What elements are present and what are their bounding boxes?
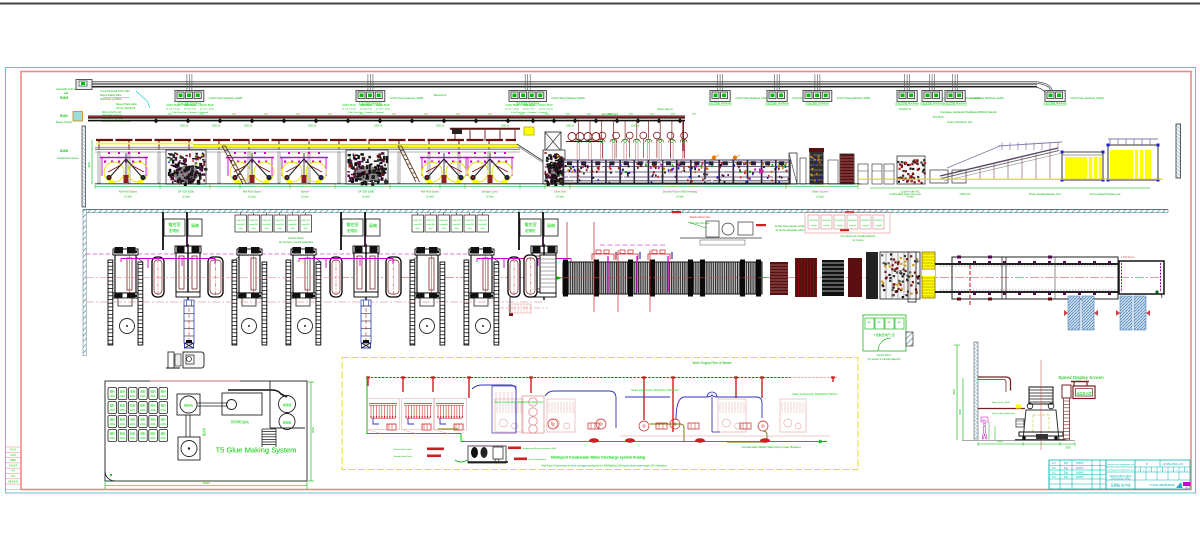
svg-text:中央控制柜 Distributor: 中央控制柜 Distributor: [1043, 101, 1067, 105]
svg-text:胶料: 胶料: [120, 418, 126, 422]
svg-text:200L: 200L: [140, 436, 146, 440]
svg-text:(2 set): (2 set): [816, 195, 823, 199]
svg-text:Servo PaperStopper part: Servo PaperStopper part: [1090, 192, 1121, 196]
svg-text:2021: 2021: [360, 114, 366, 116]
svg-text:中央控制柜 Distributor: 中央控制柜 Distributor: [943, 101, 967, 105]
svg-text:AB: AB: [878, 321, 881, 324]
svg-text:8 8: 8 8: [11, 474, 15, 478]
svg-text:45 mm 100x2700: 45 mm 100x2700: [116, 107, 136, 110]
svg-text:2021: 2021: [520, 114, 526, 116]
svg-text:胶料: 胶料: [161, 404, 167, 408]
svg-text:SF-320 1800: SF-320 1800: [178, 190, 195, 194]
svg-text:Glue Unit: Glue Unit: [554, 190, 566, 194]
svg-text:(2 sets x 4set): (2 sets x 4set): [505, 108, 519, 111]
svg-text:600x700: 600x700: [275, 220, 284, 222]
svg-text:Splicer: Splicer: [301, 190, 310, 194]
svg-text:数量: 数量: [1064, 461, 1068, 465]
svg-text:600x700: 600x700: [452, 220, 461, 222]
svg-text:1500: 1500: [1065, 447, 1071, 450]
svg-text:2021: 2021: [608, 114, 614, 116]
svg-text:7YWJF16B9BU8918: 7YWJF16B9BU8918: [1149, 483, 1175, 487]
svg-text:200L: 200L: [160, 408, 166, 412]
svg-text:胶料: 胶料: [110, 432, 116, 436]
svg-text:Control Tower Distributor cab4: Control Tower Distributor cab400: [551, 97, 585, 100]
svg-text:Heavy Distributor size: Heavy Distributor size: [947, 120, 973, 124]
svg-text:電控室: 電控室: [168, 221, 181, 228]
svg-text:Steam Consumption 9000kg/Hour: Steam Consumption 9000kg/Hour 500m/color: [495, 401, 544, 404]
svg-text:8 8 8 8: 8 8 8 8: [9, 463, 17, 467]
svg-text:Wire to the 5 to rail: Wire to the 5 to rail: [102, 111, 122, 114]
svg-text:1200 t/a: 1200 t/a: [501, 125, 510, 128]
svg-text:126.5kW: 126.5kW: [523, 103, 535, 107]
svg-text:胶料: 胶料: [161, 418, 167, 422]
svg-text:Pcs Section At Condition Elect: Pcs Section At Condition Electric: [841, 235, 876, 238]
svg-text:1200 t/a: 1200 t/a: [212, 125, 221, 128]
svg-text:main400: main400: [262, 224, 271, 226]
svg-text:中央控制柜 Distributor: 中央控制柜 Distributor: [765, 101, 789, 105]
svg-text:Mezz Level +4500: Mezz Level +4500: [992, 402, 1011, 404]
svg-text:200L: 200L: [120, 394, 126, 398]
svg-text:600x700: 600x700: [413, 220, 422, 222]
svg-text:Control Tower Distributor cab4: Control Tower Distributor cab400: [970, 97, 1004, 100]
svg-text:(2 set): (2 set): [556, 195, 563, 199]
svg-text:胶料: 胶料: [130, 404, 136, 408]
svg-text:600x700: 600x700: [426, 220, 435, 222]
svg-text:main400: main400: [439, 224, 448, 226]
svg-text:AB: AB: [888, 321, 891, 324]
svg-text:distr: distr: [481, 227, 485, 230]
svg-text:200L: 200L: [109, 422, 115, 426]
svg-text:胶料: 胶料: [161, 432, 167, 436]
svg-text:distr: distr: [252, 227, 256, 230]
svg-text:WJ250-2500-2-15: WJ250-2500-2-15: [1163, 463, 1184, 466]
svg-text:Control Tower Distributor cab4: Control Tower Distributor cab400: [209, 97, 243, 100]
svg-text:Control Tower Distributor cab4: Control Tower Distributor cab400: [735, 97, 769, 100]
svg-text:Mill Roll Stand: Mill Roll Stand: [421, 190, 439, 194]
svg-text:200L: 200L: [150, 408, 156, 412]
svg-text:2016.5kW: 2016.5kW: [539, 103, 553, 107]
svg-text:Control Tower Distributor cab4: Control Tower Distributor cab400: [390, 97, 424, 100]
svg-text:600x700: 600x700: [465, 220, 474, 222]
svg-text:(by Section to Counting Electr: (by Section to Counting Electric): [868, 358, 901, 361]
svg-text:标记: 标记: [1052, 466, 1056, 470]
svg-text:200L: 200L: [160, 394, 166, 398]
svg-text:成胶罐: 成胶罐: [283, 421, 292, 425]
svg-text:main400: main400: [478, 224, 487, 226]
svg-text:600x700: 600x700: [236, 220, 245, 222]
svg-text:2021: 2021: [328, 114, 334, 116]
svg-text:Mill Roll Stand: Mill Roll Stand: [243, 190, 261, 194]
svg-text:胶料: 胶料: [161, 390, 167, 394]
svg-text:胶料: 胶料: [140, 404, 146, 408]
svg-text:600x700: 600x700: [439, 220, 448, 222]
svg-text:Distributor pcs500A: Distributor pcs500A: [100, 98, 122, 101]
svg-text:200L: 200L: [120, 408, 126, 412]
svg-text:2021: 2021: [671, 114, 677, 116]
svg-text:Complete Hydraulic Shaftless: Complete Hydraulic Shaftless Mill Roll S…: [940, 110, 997, 114]
svg-text:200L: 200L: [140, 422, 146, 426]
svg-text:AB: AB: [898, 321, 901, 324]
svg-text:胶料: 胶料: [140, 418, 146, 422]
svg-text:(2 set): (2 set): [182, 195, 189, 199]
svg-text:電控室: 電控室: [524, 221, 537, 228]
svg-text:distr: distr: [304, 227, 308, 230]
svg-text:胶料: 胶料: [120, 390, 126, 394]
svg-text:(2 set): (2 set): [124, 195, 131, 199]
svg-text:Control Tower Distributor cab4: Control Tower Distributor cab400: [1070, 97, 1104, 100]
svg-text:5163: 5163: [60, 96, 68, 100]
svg-text:Corrugated cardboard corp: Corrugated cardboard corp: [1107, 469, 1134, 472]
svg-text:1200 t/a: 1200 t/a: [308, 125, 317, 128]
svg-text:風機: 風機: [191, 222, 199, 228]
svg-text:main400: main400: [452, 224, 461, 226]
svg-text:Steam Inflow Valve: Steam Inflow Valve: [393, 448, 412, 451]
svg-text:胶料: 胶料: [130, 418, 136, 422]
svg-text:(2 set): (2 set): [426, 195, 433, 199]
svg-text:distr: distr: [442, 227, 446, 230]
svg-text:(by Section to Counting Electr: (by Section to Counting Electric): [279, 241, 313, 244]
svg-text:200L: 200L: [130, 394, 136, 398]
svg-text:200L: 200L: [140, 394, 146, 398]
svg-text:distr: distr: [416, 227, 420, 230]
svg-text:4 8m 50m Stm—Chamber 2-Optiona: 4 8m 50m Stm—Chamber 2-Optional: [511, 111, 548, 114]
svg-text:600x700: 600x700: [478, 220, 487, 222]
svg-text:200L: 200L: [130, 436, 136, 440]
svg-text:2021: 2021: [587, 114, 593, 116]
svg-text:中央控制柜 Distributor: 中央控制柜 Distributor: [920, 101, 944, 105]
svg-text:(2 sets x 4set): (2 sets x 4set): [539, 108, 553, 111]
svg-text:main400: main400: [413, 224, 422, 226]
svg-text:200L: 200L: [109, 408, 115, 412]
svg-text:weight: weight: [862, 224, 869, 227]
svg-text:600x700: 600x700: [301, 220, 310, 222]
svg-text:(2sets) 2set: (2sets) 2set: [184, 108, 196, 111]
svg-text:Condensate Water Main Pipe Low: Condensate Water Main Pipe Lower Bracket: [741, 445, 800, 449]
svg-text:Speed Track cable: Speed Track cable: [116, 103, 137, 106]
svg-text:2021: 2021: [200, 114, 206, 116]
svg-text:620x350: 620x350: [861, 220, 870, 222]
svg-text:Assembly Unit to: Assembly Unit to: [56, 87, 76, 91]
svg-text:中央控制柜 Distributor: 中央控制柜 Distributor: [895, 101, 919, 105]
svg-text:1200 t/a: 1200 t/a: [180, 125, 189, 128]
svg-text:Smooth Inlet Valve: Smooth Inlet Valve: [394, 455, 413, 458]
svg-text:(2sets) 2set: (2sets) 2set: [523, 108, 535, 111]
svg-text:1200 t/a: 1200 t/a: [374, 125, 383, 128]
svg-text:MAG: MAG: [982, 419, 987, 422]
svg-text:Condensate Mixed overflow to W: Condensate Mixed overflow to Wall: [522, 447, 557, 450]
svg-text:200L: 200L: [150, 436, 156, 440]
svg-text:4 8 8: 4 8 8: [10, 453, 16, 457]
svg-text:2021: 2021: [629, 114, 635, 116]
svg-text:5000: 5000: [997, 441, 1003, 444]
svg-text:200L: 200L: [120, 422, 126, 426]
svg-text:修改单号: 修改单号: [1076, 461, 1084, 465]
svg-text:数量: 数量: [1064, 466, 1068, 470]
svg-text:620x350: 620x350: [822, 220, 831, 222]
svg-text:2016.5kW: 2016.5kW: [200, 103, 214, 107]
svg-text:数量: 数量: [1064, 471, 1068, 475]
svg-text:修改单号: 修改单号: [1076, 471, 1084, 475]
svg-text:速度显示屏: 速度显示屏: [1076, 391, 1091, 396]
svg-text:Work Supply Pipe of Steam: Work Supply Pipe of Steam: [693, 361, 732, 365]
svg-text:胶料: 胶料: [140, 390, 146, 394]
svg-text:2021: 2021: [168, 114, 174, 116]
svg-text:distr: distr: [429, 227, 433, 230]
svg-text:瓦楞纸 生产线: 瓦楞纸 生产线: [1110, 483, 1131, 488]
svg-text:Incline Belt Conv Con-ed: Incline Belt Conv Con-ed: [890, 192, 921, 196]
svg-text:4 8: 4 8: [11, 469, 15, 473]
svg-text:标记: 标记: [1052, 475, 1056, 479]
svg-text:電控室: 電控室: [346, 221, 359, 228]
svg-text:Speed Safety Plate: Speed Safety Plate: [100, 94, 122, 97]
svg-text:600x700: 600x700: [249, 220, 258, 222]
svg-text:Equipment Layout: Equipment Layout: [58, 156, 79, 160]
svg-text:中央控制柜 Distributor: 中央控制柜 Distributor: [806, 101, 830, 105]
svg-text:2250x2500x178/5L: 2250x2500x178/5L: [1110, 478, 1131, 481]
svg-text:1200 t/a: 1200 t/a: [244, 125, 253, 128]
svg-text:数量: 数量: [1064, 475, 1068, 479]
svg-text:200L: 200L: [109, 394, 115, 398]
svg-text:distr: distr: [278, 227, 282, 230]
svg-text:胶料: 胶料: [151, 418, 157, 422]
svg-text:Mill Roll Stand: Mill Roll Stand: [119, 190, 137, 194]
svg-text:weight: weight: [849, 224, 856, 227]
svg-text:600x700: 600x700: [288, 220, 297, 222]
svg-text:胶料: 胶料: [110, 418, 116, 422]
svg-text:main400: main400: [301, 224, 310, 226]
svg-text:(2 sets x 4set): (2 sets x 4set): [342, 108, 356, 111]
svg-text:标记: 标记: [1052, 461, 1056, 465]
svg-text:Recycle Unit Glue: Recycle Unit Glue: [690, 222, 710, 225]
svg-text:Steam Consumption 4000T/Hour 7: Steam Consumption 4000T/Hour 700m/color: [631, 389, 679, 392]
svg-text:修改单号: 修改单号: [1076, 475, 1084, 479]
svg-text:(2 sets x 4set): (2 sets x 4set): [376, 108, 390, 111]
svg-text:Down DoubleStacker size: Down DoubleStacker size: [1029, 192, 1061, 196]
svg-text:≈400 pcs: ≈400 pcs: [959, 192, 971, 196]
svg-text:main400: main400: [426, 224, 435, 226]
svg-text:5161: 5161: [60, 114, 68, 118]
svg-text:Double Hose Cylinder to Pipe: Double Hose Cylinder to Pipe: [775, 225, 806, 228]
svg-text:distr: distr: [239, 227, 243, 230]
svg-text:胶料: 胶料: [110, 390, 116, 394]
svg-text:(2 set): (2 set): [362, 195, 369, 199]
svg-text:(2 set): (2 set): [486, 195, 493, 199]
svg-text:胶料: 胶料: [120, 432, 126, 436]
svg-text:Bridge Conv: Bridge Conv: [482, 190, 498, 194]
svg-text:(2 sets x 4set): (2 sets x 4set): [166, 108, 180, 111]
svg-text:2016.5kW: 2016.5kW: [505, 103, 519, 107]
svg-text:Preprint 2t: Preprint 2t: [899, 107, 911, 111]
svg-text:胶料: 胶料: [151, 390, 157, 394]
svg-text:高: 高: [1185, 486, 1188, 490]
svg-text:126.5kW: 126.5kW: [360, 103, 372, 107]
svg-text:5500: 5500: [959, 409, 962, 415]
svg-text:Total Steam Consumption in who: Total Steam Consumption in whole corruga…: [541, 465, 667, 468]
svg-text:1200 t/a: 1200 t/a: [566, 125, 575, 128]
svg-text:胶料: 胶料: [110, 404, 116, 408]
svg-text:T 控制室电气 室: T 控制室电气 室: [873, 332, 894, 337]
svg-text:200L: 200L: [130, 408, 136, 412]
svg-text:200L: 200L: [150, 394, 156, 398]
svg-text:Under Floor distribution: Under Floor distribution: [992, 412, 1016, 415]
svg-text:620x350: 620x350: [848, 220, 857, 222]
svg-text:Intelligent Condensate Water D: Intelligent Condensate Water Discharge s…: [551, 456, 645, 460]
svg-text:(2 set): (2 set): [676, 195, 683, 199]
svg-text:输送泵: 输送泵: [202, 428, 206, 437]
svg-text:Steam pipe 2t: Steam pipe 2t: [657, 108, 673, 111]
svg-text:2016.5kW: 2016.5kW: [376, 103, 390, 107]
svg-text:Monorail 2t: Monorail 2t: [434, 94, 447, 97]
svg-text:TCY525: TCY525: [932, 115, 943, 119]
svg-text:标记: 标记: [1052, 471, 1056, 475]
svg-text:2021: 2021: [232, 114, 238, 116]
svg-text:2021: 2021: [296, 114, 302, 116]
svg-text:2021: 2021: [456, 114, 462, 116]
svg-text:4 sets Monorail 2t Per Rail: 4 sets Monorail 2t Per Rail: [100, 90, 130, 93]
svg-text:2021: 2021: [692, 114, 698, 116]
svg-text:配電柜: 配電柜: [525, 228, 536, 233]
svg-text:1200 t/a: 1200 t/a: [631, 125, 640, 128]
svg-text:620x350: 620x350: [809, 220, 818, 222]
svg-text:4800: 4800: [88, 162, 91, 168]
svg-text:distr: distr: [455, 227, 459, 230]
svg-text:weight: weight: [823, 224, 830, 227]
svg-text:weight: weight: [810, 224, 817, 227]
svg-text:阿苏姆贝兹先: 阿苏姆贝兹先: [231, 419, 249, 424]
svg-text:Speed Display Screen: Speed Display Screen: [1058, 375, 1104, 380]
svg-text:126.5kW: 126.5kW: [184, 103, 196, 107]
svg-text:200L: 200L: [140, 408, 146, 412]
svg-text:Steam Consumption 3000kg/Hour: Steam Consumption 3000kg/Hour 500m/m: [792, 393, 837, 396]
svg-text:2021: 2021: [424, 114, 430, 116]
svg-text:搅拌机: 搅拌机: [184, 403, 193, 408]
svg-text:200L: 200L: [130, 422, 136, 426]
svg-text:胶料: 胶料: [130, 432, 136, 436]
svg-text:weight: weight: [875, 224, 882, 227]
svg-text:200L: 200L: [160, 436, 166, 440]
svg-text:for Centre: for Centre: [853, 239, 864, 242]
svg-text:distr: distr: [468, 227, 472, 230]
svg-text:風機: 風機: [369, 222, 377, 228]
svg-text:Jiangsu city corporation Ltd: Jiangsu city corporation Ltd: [1107, 463, 1134, 466]
svg-text:2016.5kW: 2016.5kW: [166, 103, 180, 107]
svg-text:2021: 2021: [566, 114, 572, 116]
svg-text:main400: main400: [465, 224, 474, 226]
svg-text:620x350: 620x350: [835, 220, 844, 222]
svg-text:胶料: 胶料: [120, 404, 126, 408]
svg-text:(2 set): (2 set): [248, 195, 255, 199]
svg-text:main400: main400: [288, 224, 297, 226]
svg-text:8 A 8: 8 A 8: [10, 448, 16, 452]
svg-text:1499.52/μm: 1499.52/μm: [1121, 255, 1135, 259]
svg-text:(2 set): (2 set): [301, 195, 308, 199]
svg-text:成胶罐: 成胶罐: [283, 403, 292, 407]
svg-text:2021: 2021: [264, 114, 270, 116]
svg-text:2021: 2021: [650, 114, 656, 116]
svg-text:2021: 2021: [488, 114, 494, 116]
svg-text:8500: 8500: [953, 389, 956, 395]
svg-text:Hall: Hall: [64, 91, 69, 95]
svg-text:620x350: 620x350: [874, 220, 883, 222]
svg-text:main400: main400: [236, 224, 245, 226]
svg-text:Control Tower Distributor cab4: Control Tower Distributor cab400: [837, 97, 871, 100]
svg-text:weight: weight: [836, 224, 843, 227]
svg-text:修改单号: 修改单号: [1076, 466, 1084, 470]
svg-text:Simple Carton Glue: Simple Carton Glue: [690, 216, 712, 219]
svg-text:SF-320 1800: SF-320 1800: [358, 190, 375, 194]
svg-text:配電柜: 配電柜: [347, 228, 358, 233]
svg-text:胶料: 胶料: [130, 390, 136, 394]
svg-text:AB: AB: [868, 321, 871, 324]
svg-text:distr: distr: [265, 227, 269, 230]
svg-text:2016.5kW: 2016.5kW: [342, 103, 356, 107]
svg-text:by Section alongside Incline: by Section alongside Incline: [776, 229, 805, 232]
svg-text:200L: 200L: [160, 422, 166, 426]
svg-text:Slitter Scorer: Slitter Scorer: [812, 190, 828, 194]
svg-text:2021: 2021: [392, 114, 398, 116]
svg-text:胶料: 胶料: [151, 432, 157, 436]
svg-text:Double Facer 9000 Heating: Double Facer 9000 Heating: [663, 190, 698, 194]
svg-text:B: B: [1146, 463, 1148, 466]
svg-text:200L: 200L: [109, 436, 115, 440]
svg-text:200L: 200L: [120, 436, 126, 440]
svg-text:配電柜: 配電柜: [169, 228, 180, 233]
svg-text:(2 sets x 4set): (2 sets x 4set): [200, 108, 214, 111]
svg-text:2021: 2021: [545, 114, 551, 116]
svg-text:600x700: 600x700: [262, 220, 271, 222]
svg-text:88 8 8 8: 88 8 8 8: [8, 479, 18, 483]
svg-text:24000: 24000: [202, 481, 210, 485]
svg-text:5160: 5160: [60, 149, 68, 153]
svg-text:胶料: 胶料: [140, 432, 146, 436]
svg-text:main400: main400: [249, 224, 258, 226]
svg-text:風機: 風機: [547, 222, 555, 228]
svg-text:T5 Glue Making System: T5 Glue Making System: [215, 446, 296, 455]
svg-text:2880: 2880: [10, 458, 16, 462]
svg-text:中央控制柜 Distributor: 中央控制柜 Distributor: [708, 101, 732, 105]
svg-text:Control Room: Control Room: [877, 354, 892, 357]
svg-text:胶料: 胶料: [151, 404, 157, 408]
svg-text:Control Room: Control Room: [288, 236, 304, 240]
svg-text:main400: main400: [275, 224, 284, 226]
svg-text:distr: distr: [291, 227, 295, 230]
svg-text:Steam Supply: Steam Supply: [56, 120, 73, 124]
svg-text:4 8m 50m Stm—Chamber 2-Optiona: 4 8m 50m Stm—Chamber 2-Optional: [348, 111, 385, 114]
svg-text:(2sets) 2set: (2sets) 2set: [360, 108, 372, 111]
svg-text:Person Equipment: Person Equipment: [528, 458, 546, 461]
svg-text:200L: 200L: [150, 422, 156, 426]
svg-text:1200 t/a: 1200 t/a: [436, 125, 445, 128]
svg-text:9000: 9000: [311, 427, 315, 433]
